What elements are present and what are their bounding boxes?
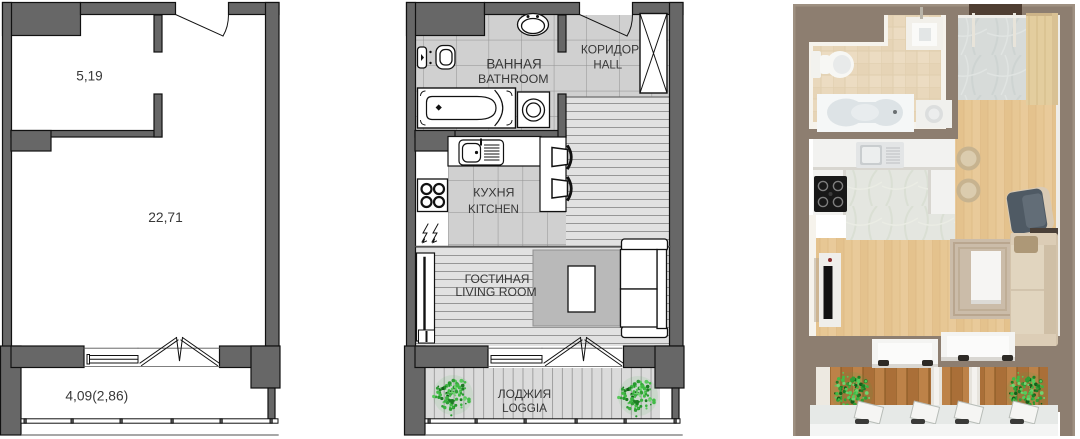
svg-text:KITCHEN: KITCHEN (468, 203, 519, 216)
svg-text:LOGGIA: LOGGIA (502, 402, 547, 415)
svg-text:5,19: 5,19 (76, 69, 102, 84)
svg-text:ВАННАЯ: ВАННАЯ (486, 57, 541, 72)
svg-text:КУХНЯ: КУХНЯ (473, 186, 514, 200)
svg-text:КОРИДОР: КОРИДОР (581, 43, 639, 57)
svg-text:ЛОДЖИЯ: ЛОДЖИЯ (498, 387, 551, 401)
svg-text:4,09(2,86): 4,09(2,86) (65, 388, 128, 403)
svg-text:HALL: HALL (593, 60, 622, 72)
svg-text:ГОСТИНАЯ: ГОСТИНАЯ (465, 272, 530, 286)
svg-text:BATHROOM: BATHROOM (478, 72, 549, 86)
svg-text:22,71: 22,71 (148, 210, 183, 225)
svg-text:LIVING ROOM: LIVING ROOM (455, 285, 536, 299)
